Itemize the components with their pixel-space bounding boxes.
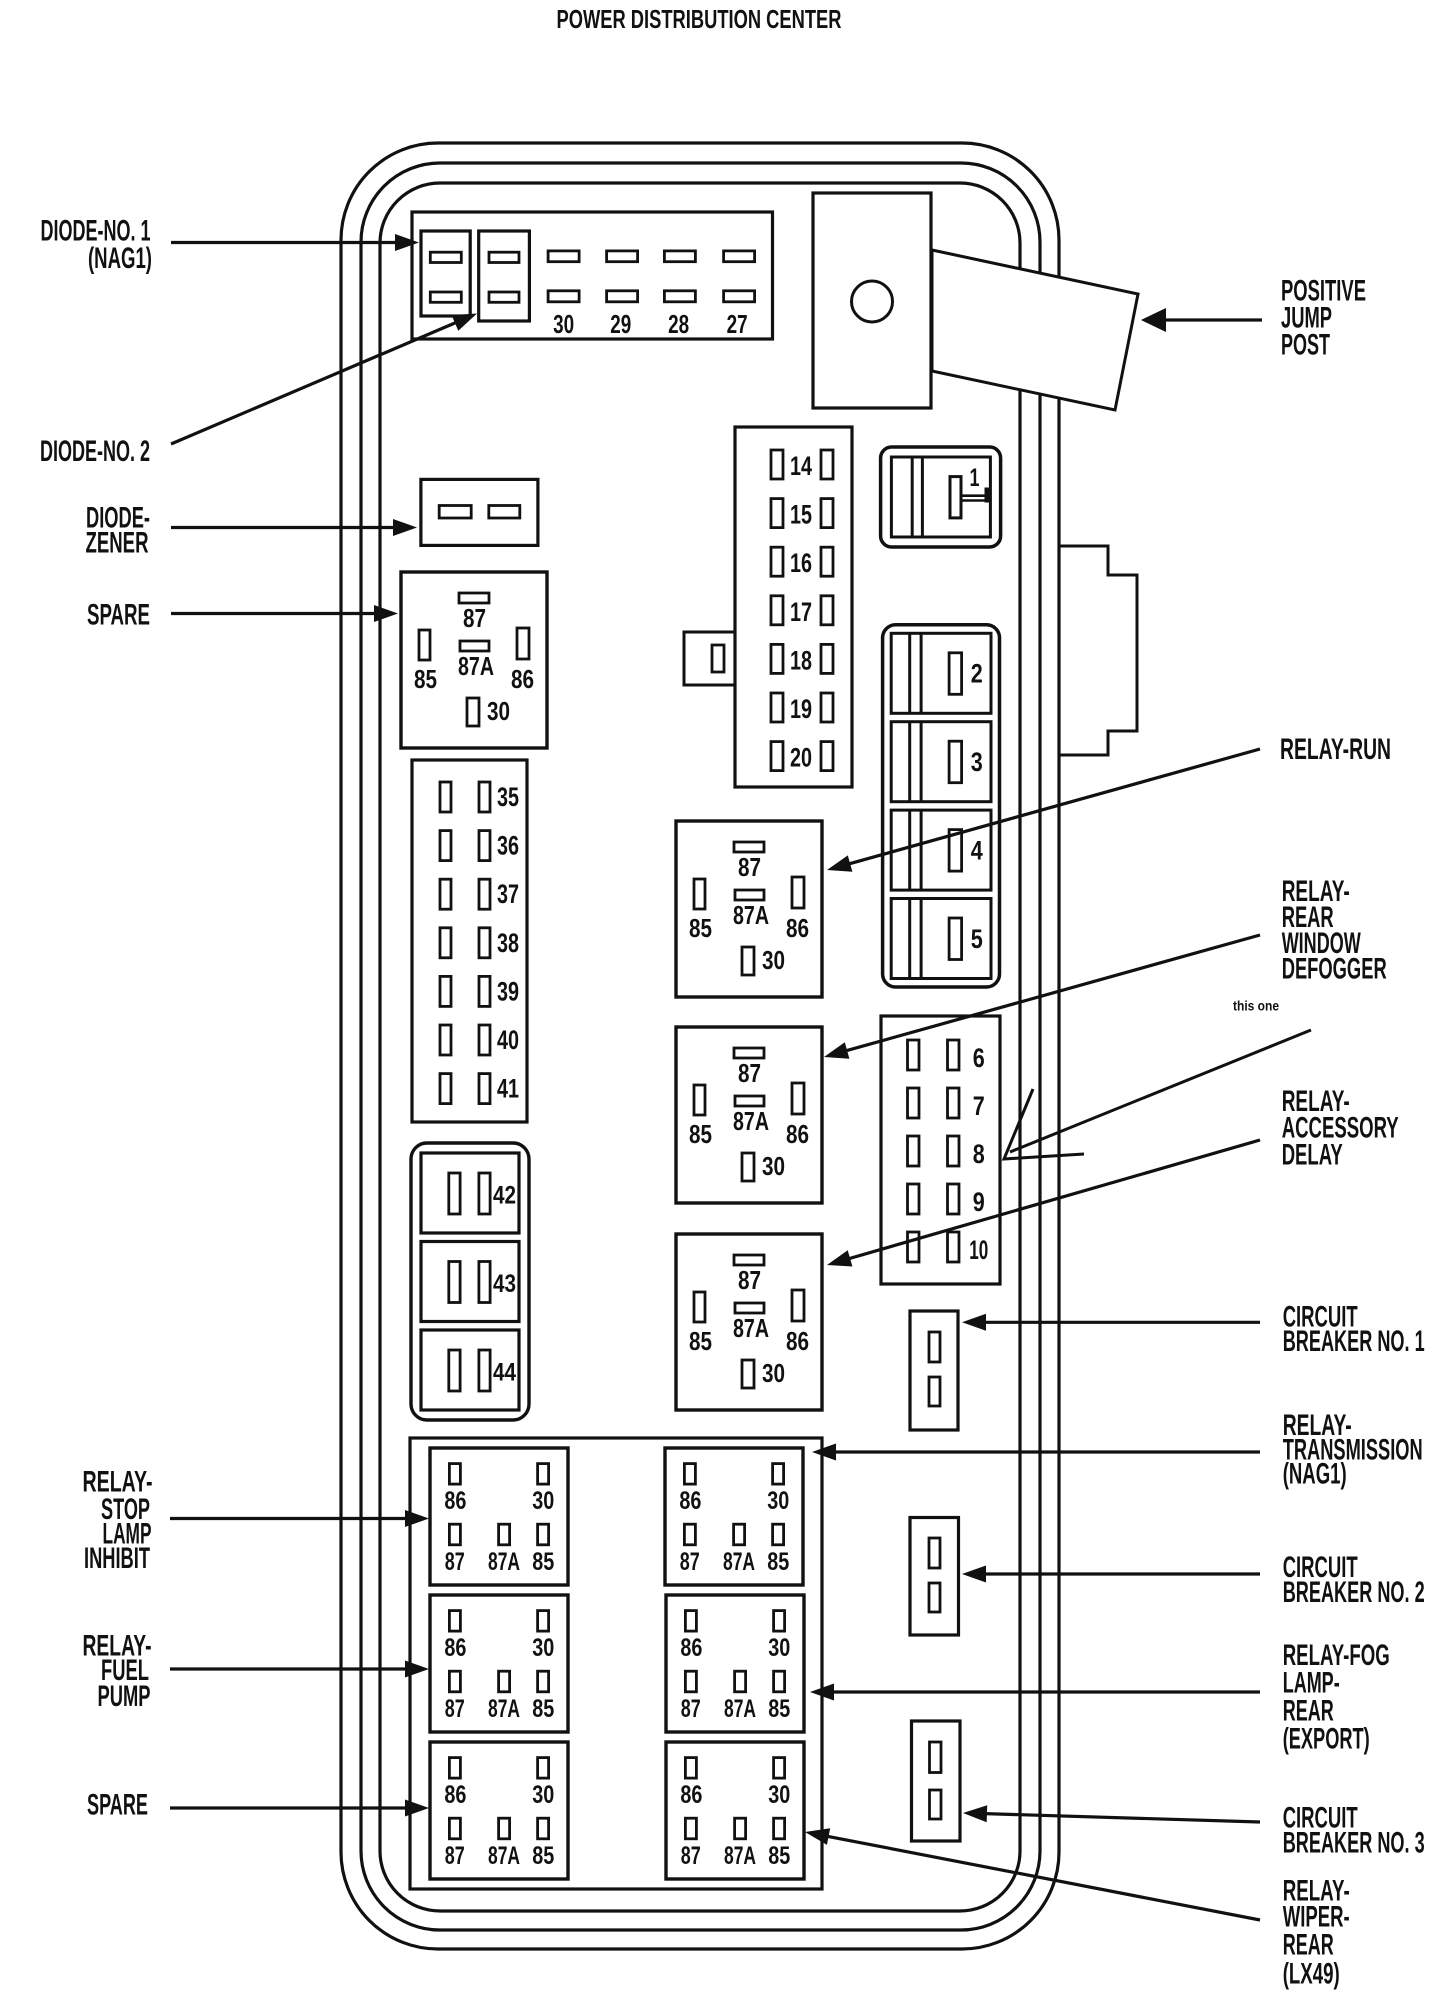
svg-text:DIODE-NO. 2: DIODE-NO. 2 (40, 435, 150, 468)
svg-text:5: 5 (971, 924, 983, 954)
svg-text:PUMP: PUMP (98, 1680, 151, 1713)
svg-text:9: 9 (973, 1187, 985, 1217)
svg-text:INHIBIT: INHIBIT (84, 1542, 150, 1575)
svg-text:40: 40 (497, 1025, 519, 1055)
svg-text:3: 3 (971, 747, 983, 777)
svg-text:BREAKER NO. 3: BREAKER NO. 3 (1283, 1827, 1425, 1860)
svg-text:14: 14 (790, 451, 812, 481)
svg-text:27: 27 (727, 309, 748, 339)
svg-text:(NAG1): (NAG1) (1283, 1458, 1347, 1491)
svg-text:39: 39 (497, 976, 519, 1006)
svg-text:SPARE: SPARE (87, 1789, 148, 1822)
svg-text:DEFOGGER: DEFOGGER (1282, 953, 1387, 986)
svg-text:42: 42 (493, 1182, 516, 1210)
svg-text:17: 17 (790, 597, 812, 627)
svg-text:28: 28 (668, 309, 689, 339)
svg-text:RELAY-RUN: RELAY-RUN (1280, 733, 1391, 766)
svg-text:BREAKER NO. 2: BREAKER NO. 2 (1283, 1576, 1425, 1609)
svg-text:2: 2 (971, 659, 983, 689)
svg-text:29: 29 (610, 309, 631, 339)
svg-text:44: 44 (493, 1359, 516, 1387)
svg-text:41: 41 (497, 1074, 519, 1104)
svg-text:18: 18 (790, 645, 812, 675)
svg-text:16: 16 (790, 548, 812, 578)
svg-text:35: 35 (497, 782, 519, 812)
svg-text:10: 10 (969, 1235, 988, 1265)
svg-text:30: 30 (553, 309, 574, 339)
svg-text:this one: this one (1233, 998, 1279, 1014)
svg-text:(LX49): (LX49) (1283, 1958, 1340, 1991)
svg-text:(NAG1): (NAG1) (88, 242, 152, 275)
svg-text:15: 15 (790, 500, 812, 530)
svg-text:19: 19 (790, 694, 812, 724)
svg-text:DELAY: DELAY (1282, 1139, 1343, 1172)
svg-text:4: 4 (971, 836, 983, 866)
svg-text:POWER DISTRIBUTION CENTER: POWER DISTRIBUTION CENTER (557, 4, 842, 34)
svg-text:8: 8 (973, 1139, 985, 1169)
svg-text:(EXPORT): (EXPORT) (1283, 1723, 1370, 1756)
svg-text:38: 38 (497, 928, 519, 958)
svg-text:20: 20 (790, 743, 812, 773)
svg-text:36: 36 (497, 831, 519, 861)
svg-text:SPARE: SPARE (87, 599, 150, 632)
svg-text:BREAKER NO. 1: BREAKER NO. 1 (1283, 1325, 1425, 1358)
svg-text:1: 1 (970, 464, 980, 492)
svg-text:6: 6 (973, 1043, 985, 1073)
svg-text:POST: POST (1281, 329, 1330, 362)
svg-text:ZENER: ZENER (86, 527, 149, 560)
svg-text:43: 43 (493, 1270, 516, 1298)
svg-text:37: 37 (497, 879, 519, 909)
svg-text:7: 7 (973, 1091, 985, 1121)
